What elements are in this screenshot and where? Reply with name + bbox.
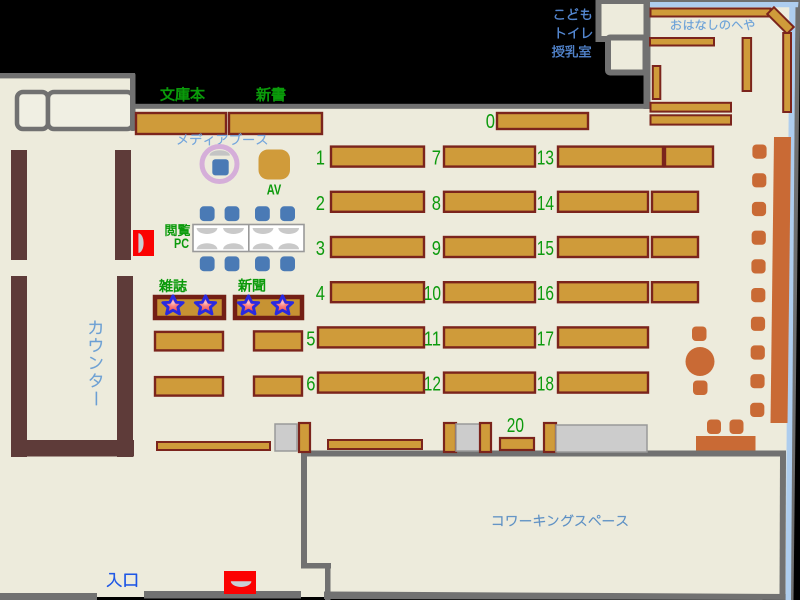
svg-text:14: 14 bbox=[537, 193, 554, 215]
svg-text:15: 15 bbox=[537, 238, 554, 260]
svg-text:8: 8 bbox=[432, 193, 441, 215]
svg-text:16: 16 bbox=[537, 283, 554, 305]
svg-text:7: 7 bbox=[432, 148, 441, 170]
svg-text:12: 12 bbox=[424, 374, 441, 396]
svg-text:4: 4 bbox=[316, 283, 325, 305]
svg-text:9: 9 bbox=[432, 238, 441, 260]
svg-text:6: 6 bbox=[306, 374, 315, 396]
svg-text:5: 5 bbox=[306, 328, 315, 350]
svg-text:PC: PC bbox=[174, 236, 189, 251]
svg-text:13: 13 bbox=[537, 148, 554, 170]
svg-text:20: 20 bbox=[507, 415, 524, 437]
svg-text:AV: AV bbox=[267, 183, 282, 199]
svg-text:0: 0 bbox=[486, 111, 495, 133]
svg-text:18: 18 bbox=[537, 374, 554, 396]
svg-text:17: 17 bbox=[537, 328, 554, 350]
svg-text:1: 1 bbox=[316, 148, 325, 170]
svg-text:2: 2 bbox=[316, 193, 325, 215]
svg-text:11: 11 bbox=[424, 328, 441, 350]
svg-text:10: 10 bbox=[424, 283, 441, 305]
svg-text:3: 3 bbox=[316, 238, 325, 260]
